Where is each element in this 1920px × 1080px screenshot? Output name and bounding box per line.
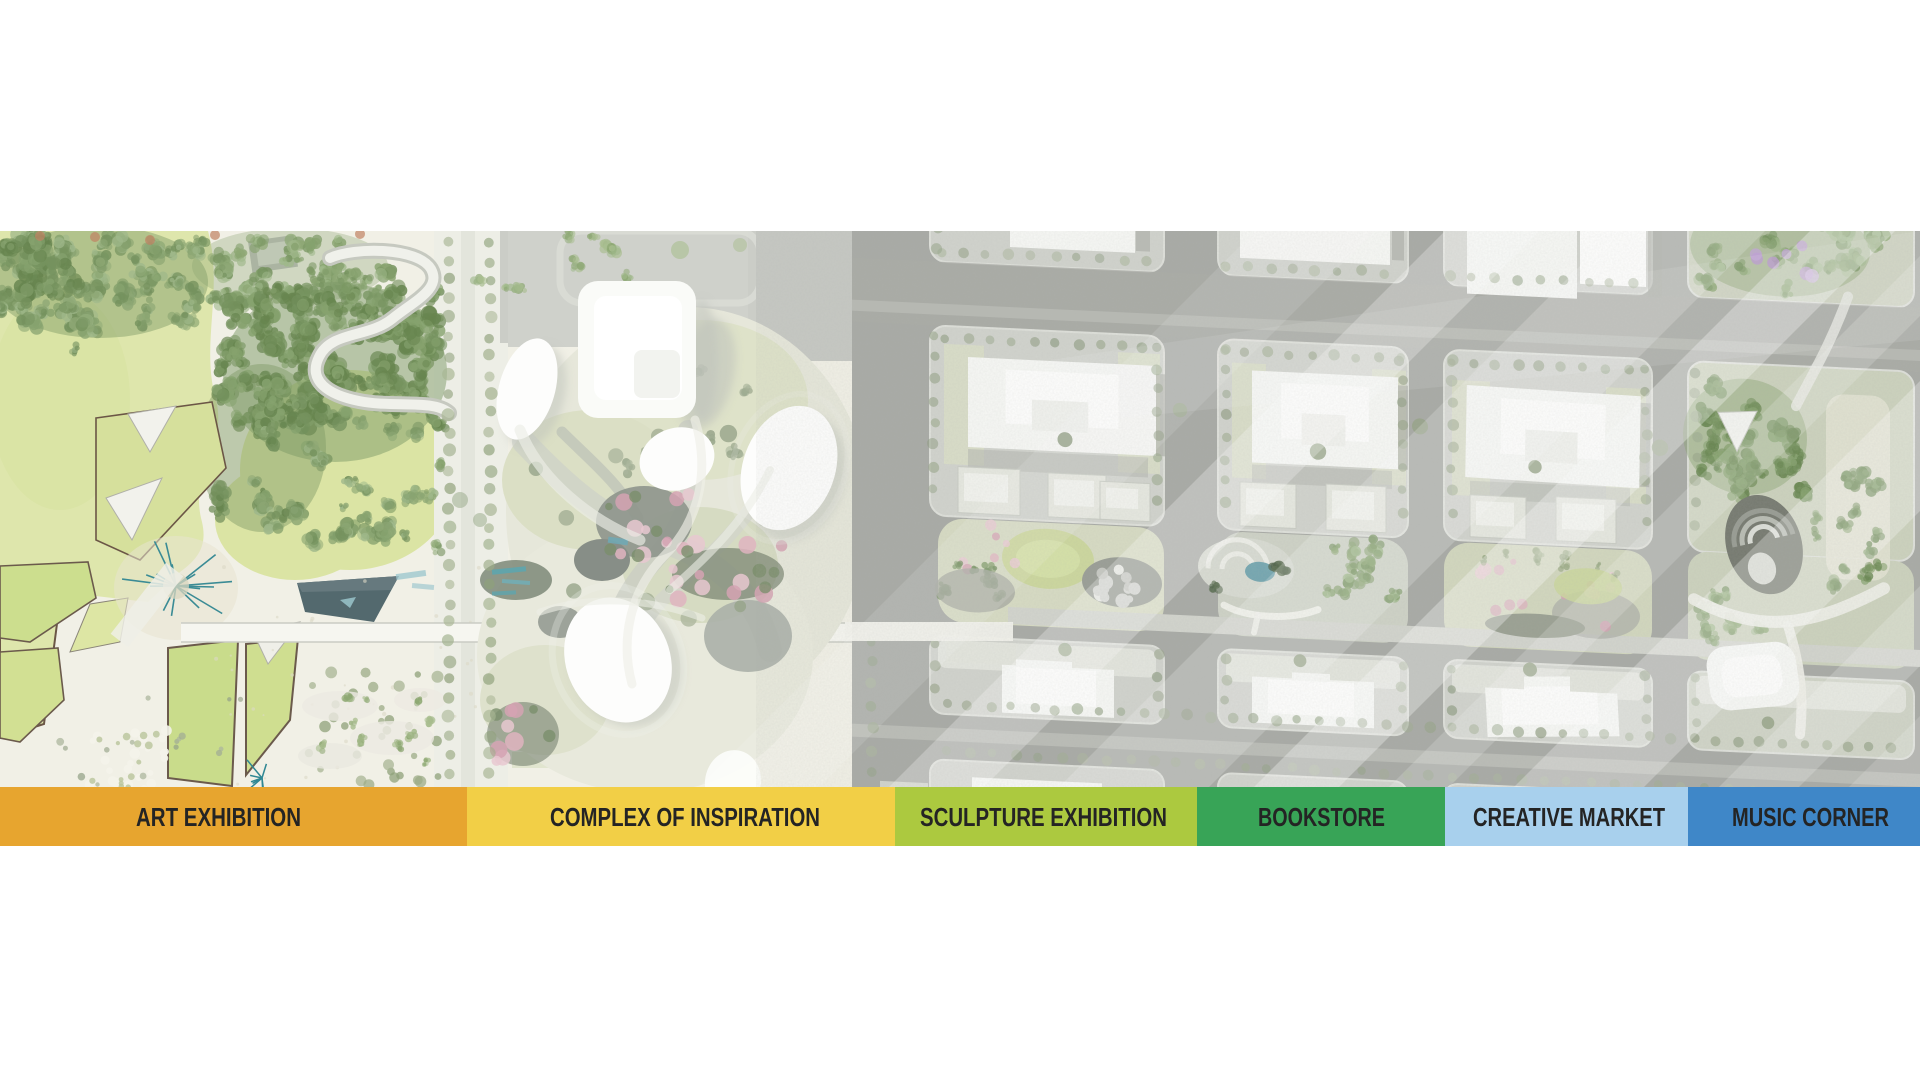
svg-text:BOOKSTORE: BOOKSTORE (1258, 802, 1385, 832)
svg-text:MUSIC CORNER: MUSIC CORNER (1732, 802, 1889, 832)
svg-text:COMPLEX OF INSPIRATION: COMPLEX OF INSPIRATION (550, 802, 820, 832)
svg-text:SCULPTURE EXHIBITION: SCULPTURE EXHIBITION (920, 802, 1167, 832)
svg-text:CREATIVE MARKET: CREATIVE MARKET (1473, 802, 1665, 832)
svg-text:ART EXHIBITION: ART EXHIBITION (136, 802, 301, 832)
